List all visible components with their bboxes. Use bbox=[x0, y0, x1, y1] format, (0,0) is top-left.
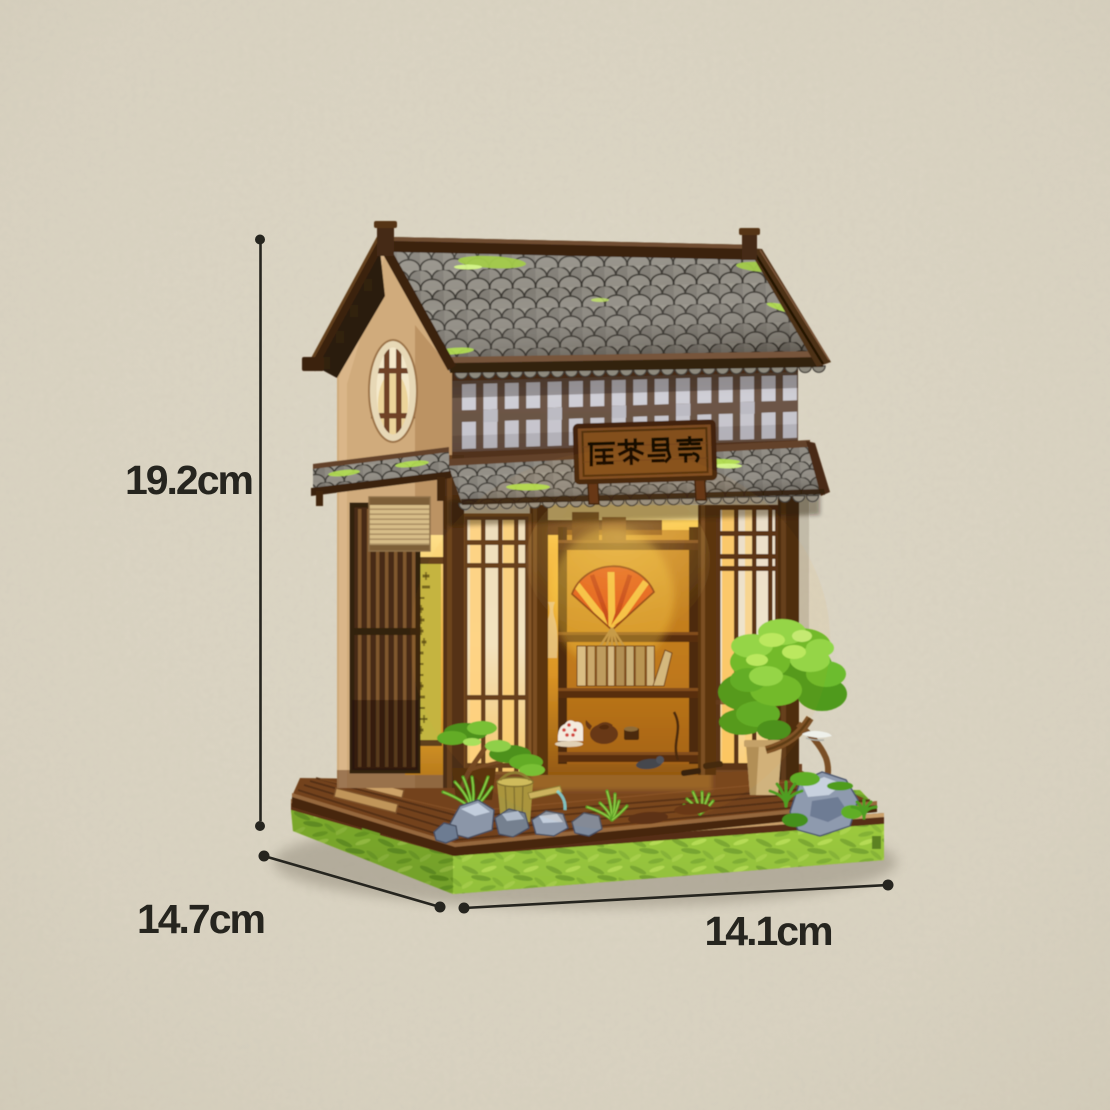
svg-text:14.1cm: 14.1cm bbox=[704, 908, 831, 954]
svg-text:14.7cm: 14.7cm bbox=[137, 896, 264, 942]
svg-text:19.2cm: 19.2cm bbox=[125, 457, 252, 503]
